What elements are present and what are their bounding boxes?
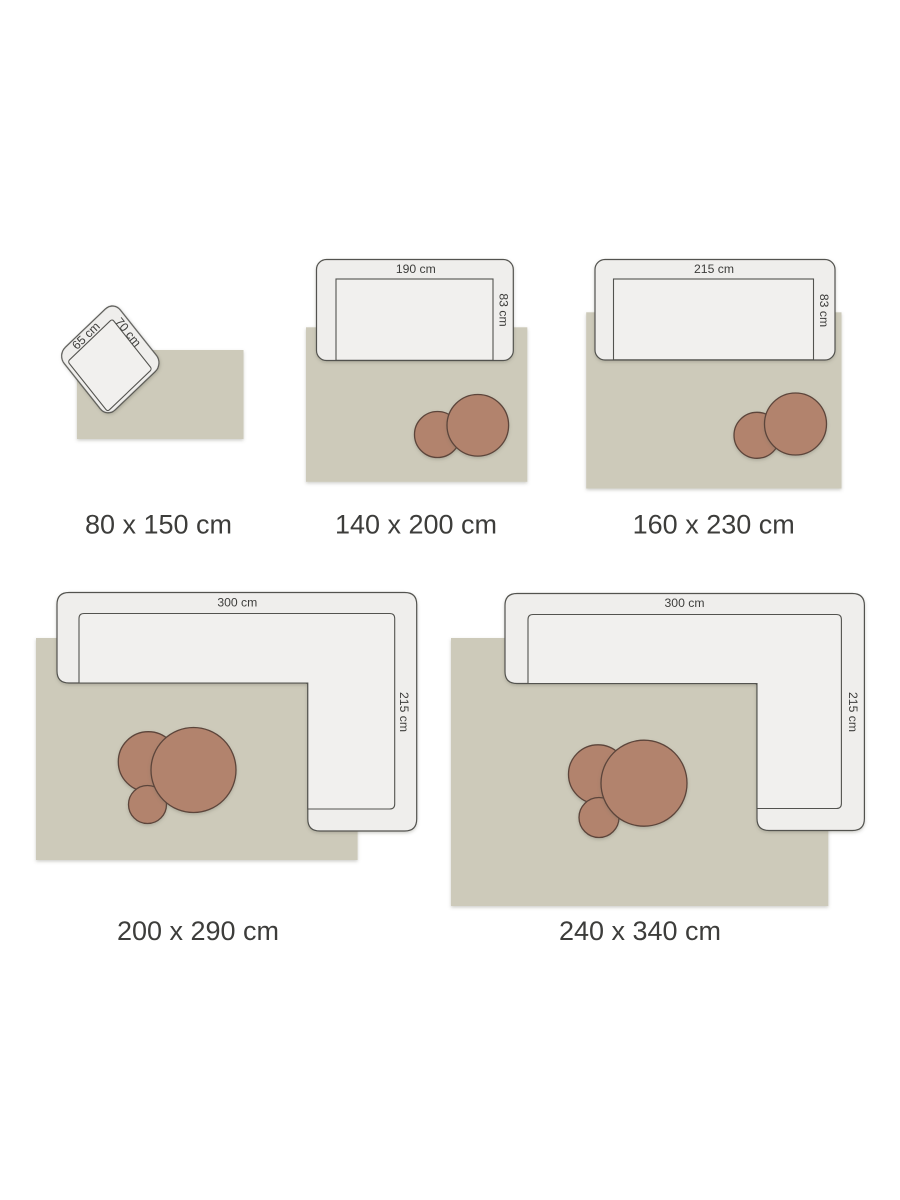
svg-text:300 cm: 300 cm bbox=[217, 595, 257, 609]
svg-text:240 x 340 cm: 240 x 340 cm bbox=[559, 916, 721, 946]
svg-text:215 cm: 215 cm bbox=[694, 262, 734, 276]
svg-text:160 x 230 cm: 160 x 230 cm bbox=[633, 510, 795, 540]
svg-text:83 cm: 83 cm bbox=[496, 293, 510, 326]
svg-text:80 x 150 cm: 80 x 150 cm bbox=[85, 510, 232, 540]
svg-text:200 x 290 cm: 200 x 290 cm bbox=[117, 916, 279, 946]
svg-text:140 x 200 cm: 140 x 200 cm bbox=[335, 510, 497, 540]
svg-text:190 cm: 190 cm bbox=[396, 262, 436, 276]
svg-text:300 cm: 300 cm bbox=[665, 596, 705, 610]
svg-text:215 cm: 215 cm bbox=[397, 692, 411, 732]
svg-text:83 cm: 83 cm bbox=[817, 294, 831, 327]
svg-text:215 cm: 215 cm bbox=[846, 692, 860, 732]
